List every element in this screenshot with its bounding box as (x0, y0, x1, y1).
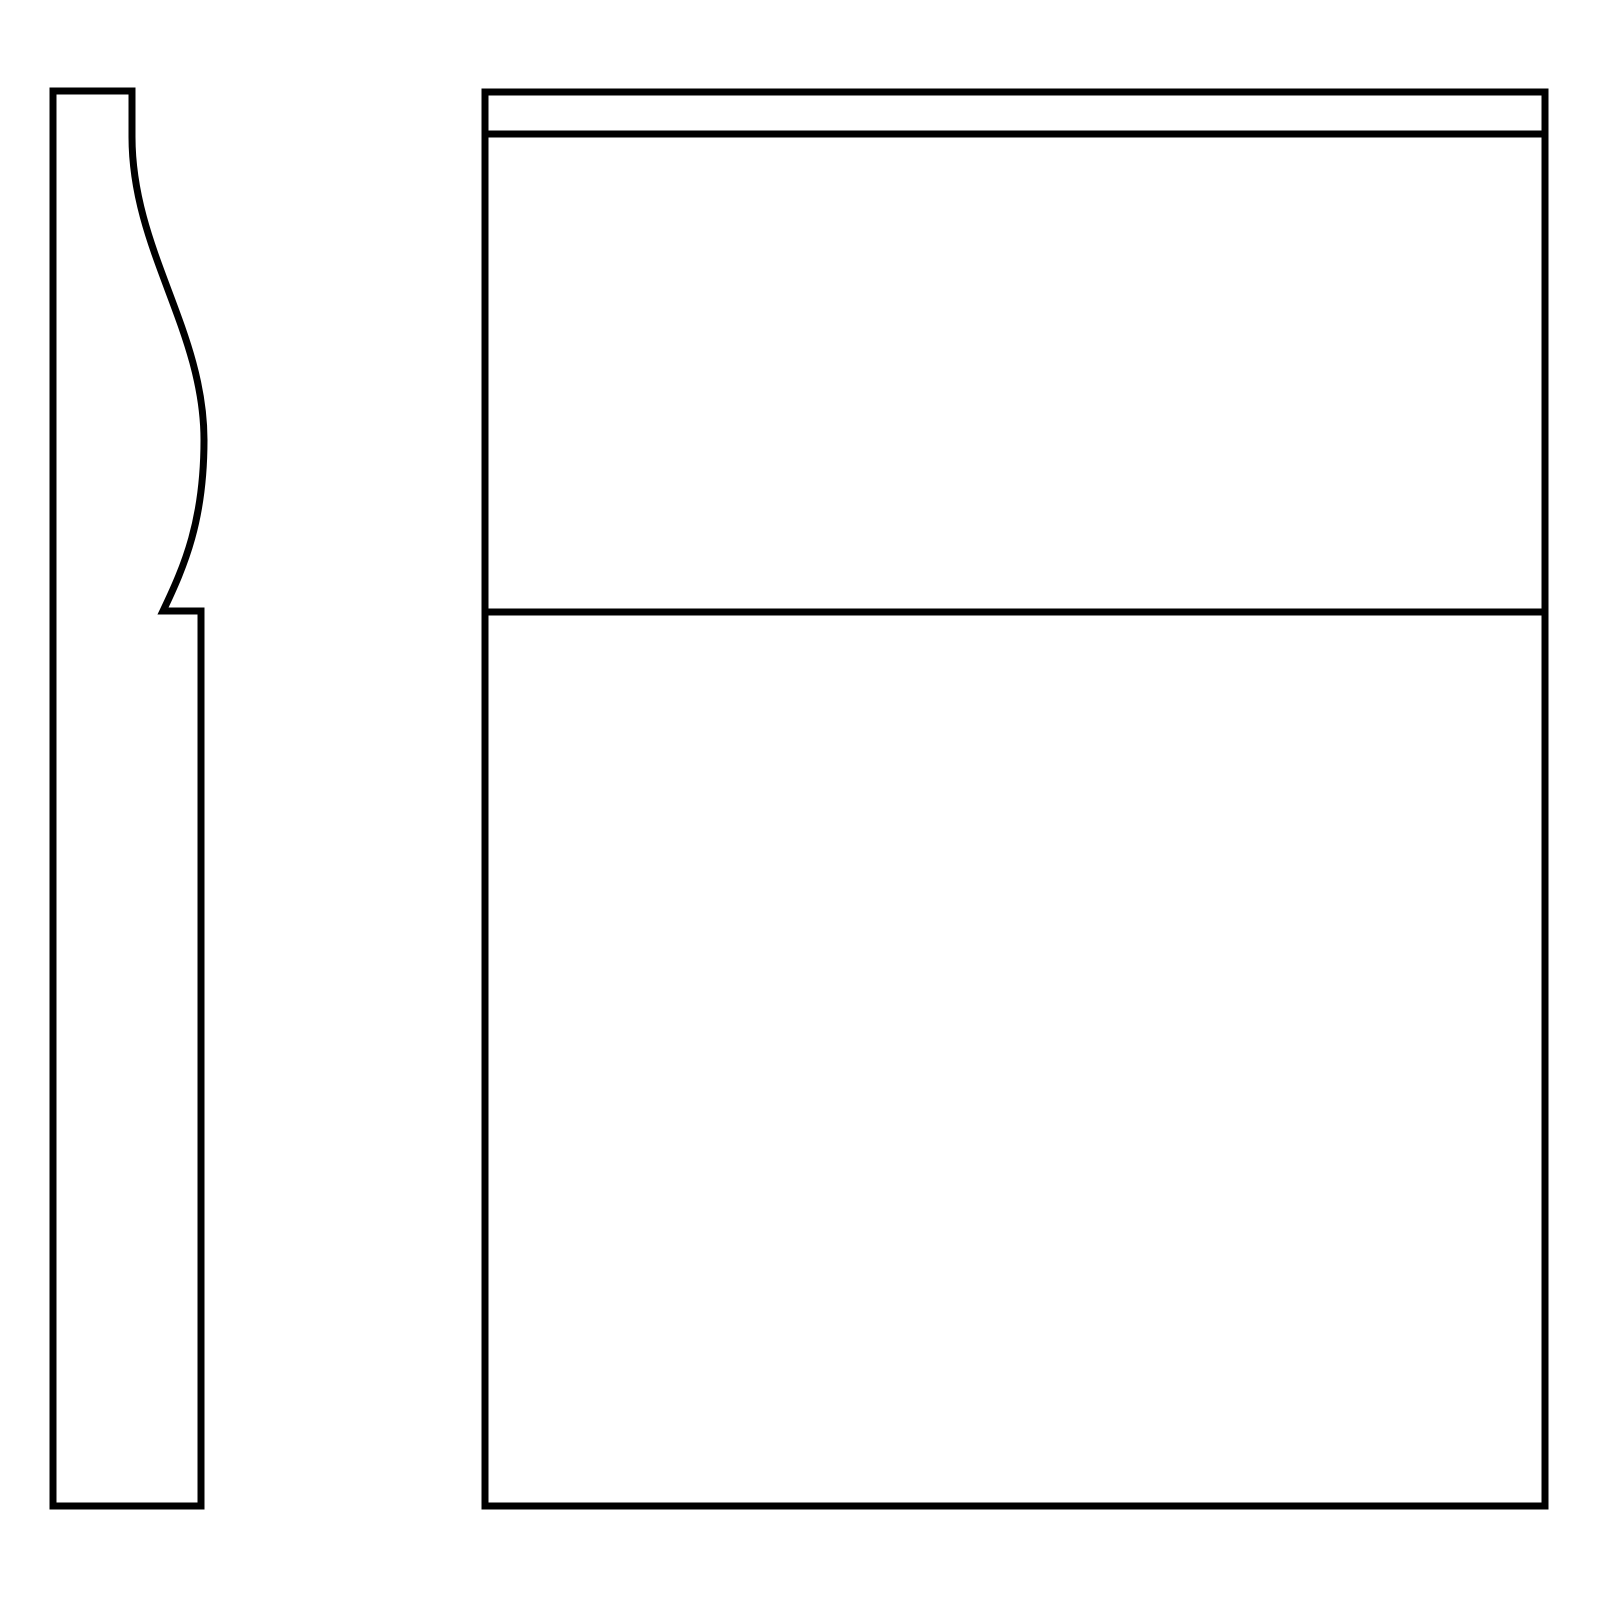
technical-drawing (0, 0, 1600, 1600)
diagram-canvas (0, 0, 1600, 1600)
side-profile-outline (53, 91, 204, 1506)
front-panel-outline (485, 92, 1545, 1506)
